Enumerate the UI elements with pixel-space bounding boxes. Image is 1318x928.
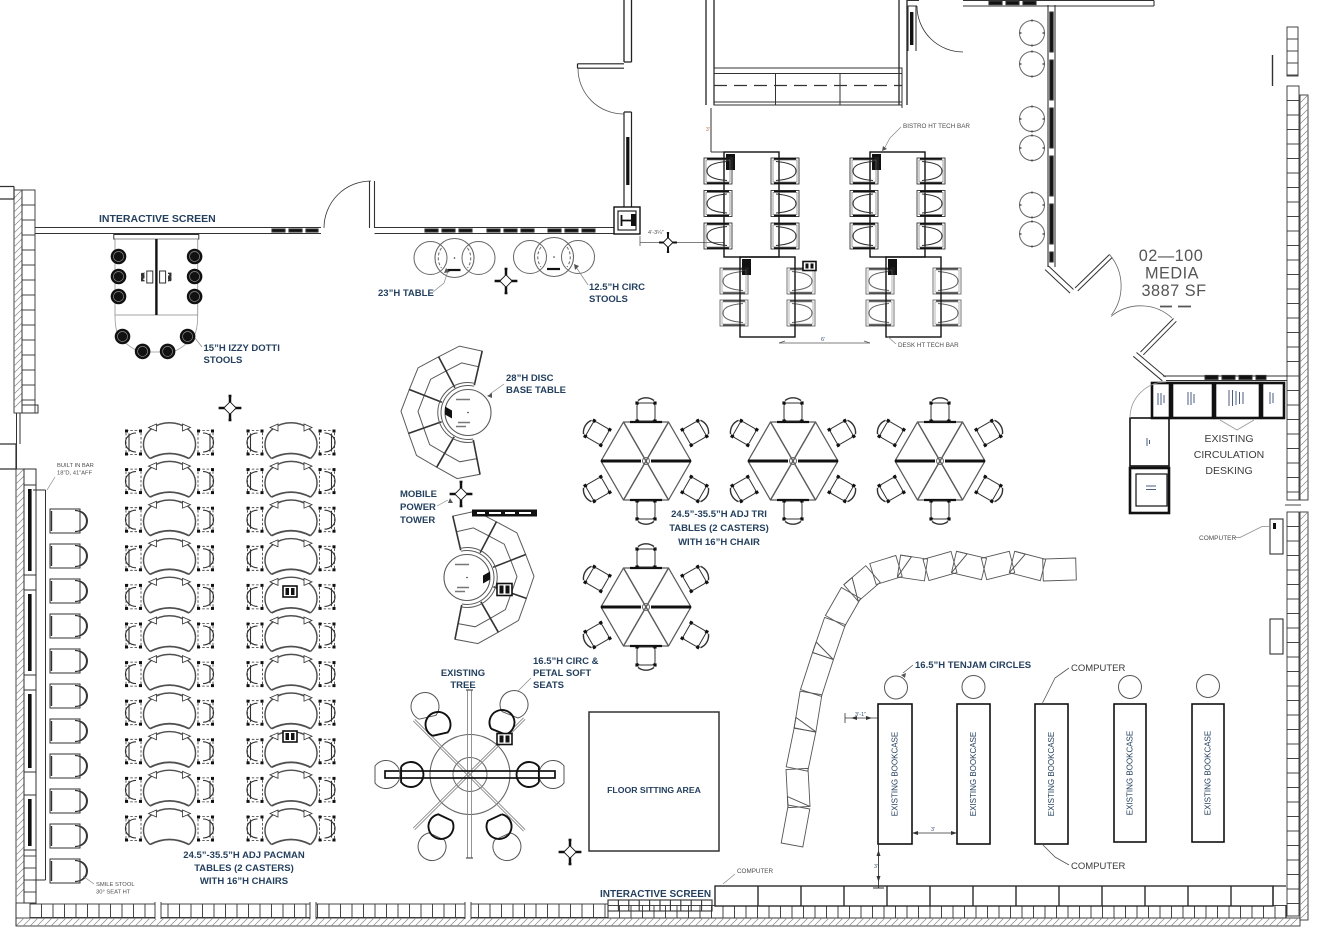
- svg-text:3887 SF: 3887 SF: [1141, 282, 1206, 300]
- svg-text:MOBILE: MOBILE: [400, 489, 437, 500]
- svg-text:EXISTING: EXISTING: [1204, 433, 1253, 445]
- svg-text:BUILT IN BAR: BUILT IN BAR: [57, 463, 94, 469]
- svg-text:CIRCULATION: CIRCULATION: [1194, 449, 1264, 461]
- svg-text:BISTRO HT TECH BAR: BISTRO HT TECH BAR: [903, 123, 970, 130]
- svg-text:EXISTING BOOKCASE: EXISTING BOOKCASE: [1126, 731, 1135, 815]
- svg-text:4’-3¼”: 4’-3¼”: [648, 230, 664, 236]
- svg-text:16.5”H TENJAM CIRCLES: 16.5”H TENJAM CIRCLES: [915, 660, 1031, 671]
- svg-text:POWER: POWER: [400, 502, 436, 513]
- svg-text:TABLES (2 CASTERS): TABLES (2 CASTERS): [669, 523, 769, 534]
- svg-text:3’: 3’: [706, 127, 710, 133]
- svg-text:02—100: 02—100: [1139, 247, 1204, 265]
- svg-text:24.5”-35.5”H ADJ PACMAN: 24.5”-35.5”H ADJ PACMAN: [183, 850, 305, 861]
- svg-text:MEDIA: MEDIA: [1145, 265, 1199, 283]
- svg-text:INTERACTIVE SCREEN: INTERACTIVE SCREEN: [600, 889, 711, 900]
- svg-text:EXISTING BOOKCASE: EXISTING BOOKCASE: [891, 732, 900, 816]
- svg-text:BASE TABLE: BASE TABLE: [506, 385, 566, 396]
- svg-text:24.5”-35.5”H ADJ TRI: 24.5”-35.5”H ADJ TRI: [671, 509, 767, 520]
- svg-text:EXISTING BOOKCASE: EXISTING BOOKCASE: [1204, 731, 1213, 815]
- svg-text:DESK HT TECH BAR: DESK HT TECH BAR: [898, 342, 959, 349]
- svg-text:EXISTING: EXISTING: [441, 668, 485, 679]
- svg-text:COMPUTER: COMPUTER: [1071, 663, 1126, 674]
- svg-text:PWR: PWR: [141, 272, 145, 281]
- svg-text:COMPUTER: COMPUTER: [1071, 861, 1126, 872]
- svg-text:WITH 16”H CHAIR: WITH 16”H CHAIR: [678, 537, 760, 548]
- svg-text:COMPUTER: COMPUTER: [737, 868, 773, 875]
- svg-text:INTERACTIVE SCREEN: INTERACTIVE SCREEN: [99, 213, 216, 225]
- svg-text:12.5”H CIRC: 12.5”H CIRC: [589, 282, 645, 293]
- svg-text:DESKING: DESKING: [1205, 465, 1252, 477]
- svg-text:EXISTING BOOKCASE: EXISTING BOOKCASE: [969, 732, 978, 816]
- svg-text:PWR: PWR: [168, 273, 172, 282]
- svg-text:COMPUTER: COMPUTER: [1199, 535, 1237, 542]
- svg-text:15”H IZZY DOTTI: 15”H IZZY DOTTI: [204, 343, 280, 354]
- svg-text:3’-1”: 3’-1”: [855, 712, 866, 718]
- svg-text:SMILE STOOL: SMILE STOOL: [96, 882, 135, 888]
- svg-text:WITH 16”H CHAIRS: WITH 16”H CHAIRS: [200, 876, 288, 887]
- svg-text:6’: 6’: [821, 337, 825, 343]
- svg-text:TREE: TREE: [450, 680, 475, 691]
- svg-text:PETAL SOFT: PETAL SOFT: [533, 668, 591, 679]
- svg-text:SEATS: SEATS: [533, 680, 564, 691]
- svg-text:30° SEAT HT: 30° SEAT HT: [96, 890, 131, 896]
- svg-text:18”D, 41”AFF: 18”D, 41”AFF: [57, 471, 93, 477]
- svg-text:STOOLS: STOOLS: [204, 355, 243, 366]
- svg-text:TOWER: TOWER: [400, 515, 435, 526]
- svg-text:TABLES (2 CASTERS): TABLES (2 CASTERS): [194, 863, 294, 874]
- svg-text:FLOOR SITTING AREA: FLOOR SITTING AREA: [607, 785, 702, 795]
- svg-text:23”H TABLE: 23”H TABLE: [378, 288, 434, 299]
- svg-text:16.5”H CIRC &: 16.5”H CIRC &: [533, 656, 599, 667]
- svg-text:3’: 3’: [931, 827, 935, 833]
- svg-text:EXISTING BOOKCASE: EXISTING BOOKCASE: [1047, 732, 1056, 816]
- svg-text:28”H DISC: 28”H DISC: [506, 373, 554, 384]
- svg-text:3’: 3’: [874, 864, 878, 870]
- svg-text:STOOLS: STOOLS: [589, 294, 628, 305]
